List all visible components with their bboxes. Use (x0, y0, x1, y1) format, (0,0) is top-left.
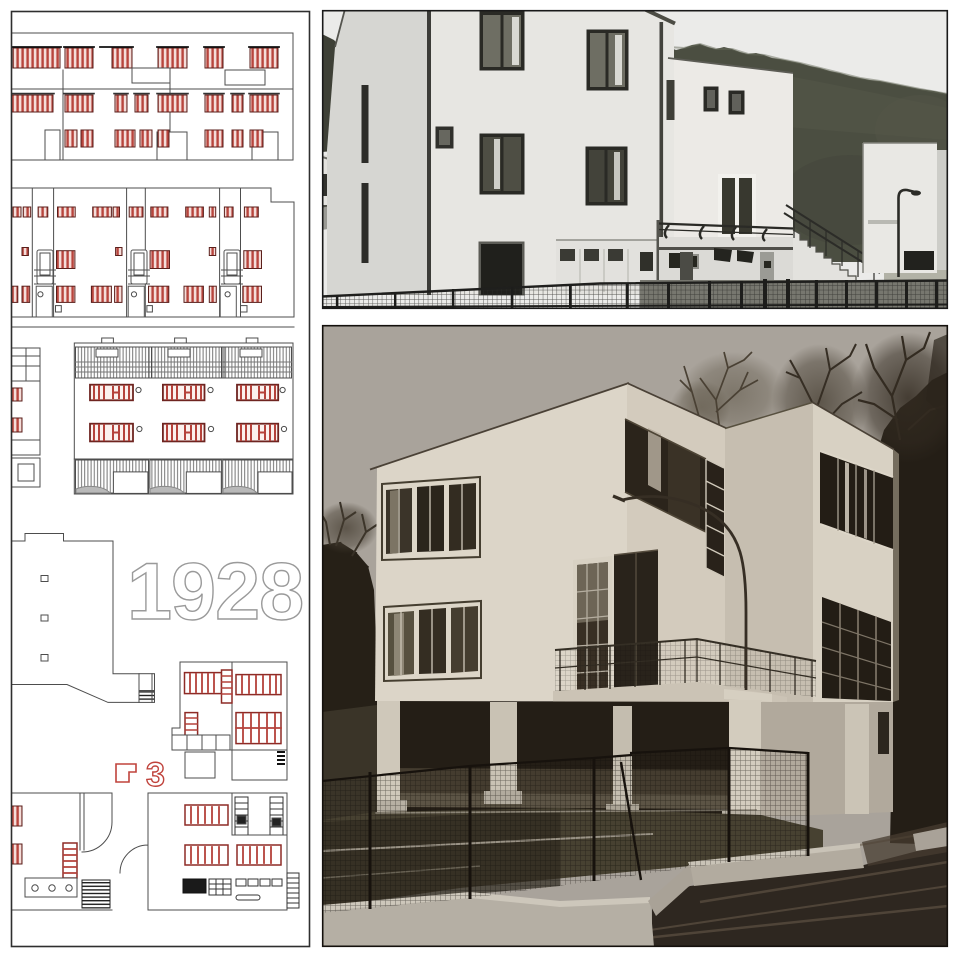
svg-text:3: 3 (146, 756, 165, 794)
svg-text:1928: 1928 (127, 547, 303, 637)
